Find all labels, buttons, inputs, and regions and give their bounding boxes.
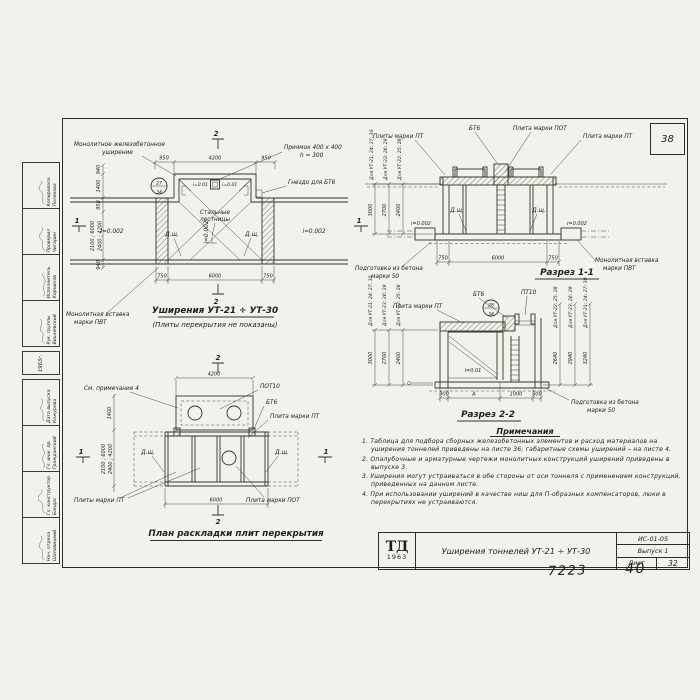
slab-hole <box>227 406 241 420</box>
handwritten-a: 7223 <box>548 563 587 579</box>
label-prep: Подготовка из бетона <box>571 400 639 406</box>
drawing-subtitle: (Плиты перекрытия не показаны) <box>152 321 277 329</box>
slope-label: i=0.002 <box>302 229 325 235</box>
svg-text:3240: 3240 <box>583 352 589 365</box>
svg-text:940: 940 <box>96 165 102 175</box>
svg-text:2100 ; 6000: 2100 ; 6000 <box>90 221 96 251</box>
drain-label: Д.щ. <box>244 232 259 238</box>
slope-label: i=0.002 <box>204 220 210 243</box>
section-1-1-drawing: Плиты марки ПТ БТ6 Плита марки ПОТ Плита… <box>345 122 690 290</box>
label-prep: Подготовка из бетона <box>355 266 423 272</box>
dim: 6000 <box>492 256 505 262</box>
svg-text:2400: 2400 <box>396 352 402 365</box>
drawing-title: План раскладки плит перекрытия <box>148 529 324 539</box>
svg-text:2940: 2940 <box>568 352 574 365</box>
left-insert-block <box>156 198 168 264</box>
label-bt6: БТ6 <box>469 126 481 132</box>
svg-text:уширение: уширение <box>101 150 133 156</box>
label-insert: Монолитная вставка <box>595 258 659 264</box>
note-item: 2. Опалубочные и арматурные чертежи моно… <box>362 456 688 472</box>
dim: 950 <box>159 156 169 162</box>
svg-text:2400 ; 4200: 2400 ; 4200 <box>98 221 104 251</box>
dim: 750 <box>157 274 167 280</box>
svg-text:2700: 2700 <box>382 352 388 365</box>
stamp-cell: Дата выпускаКожурова <box>23 380 59 425</box>
note-item: 4. При использовании уширений в качестве… <box>362 491 688 507</box>
stamp-cell: КопировалаПолякова <box>23 163 59 208</box>
ladder-rungs <box>511 340 519 380</box>
bt6-block <box>494 164 508 185</box>
svg-text:марки ПВТ: марки ПВТ <box>74 320 107 326</box>
drain-label: Д.щ. <box>164 232 179 238</box>
label-plita-pt: Плита марки ПТ <box>270 414 320 420</box>
logo: ТД 1963 <box>379 533 416 569</box>
ut-group-label: Для УТ-23; 26; 29 <box>383 138 389 181</box>
drawing-title: Уширения УТ-21 ÷ УТ-30 <box>152 306 278 316</box>
margin-stamp: Нач. отделаШаповицкий Гл. конструкторБан… <box>8 252 60 564</box>
notes-block: Примечания 1. Таблица для подбора сборны… <box>362 427 688 507</box>
label-pt10: ПТ10 <box>521 290 537 296</box>
label-pot10: ПОТ10 <box>260 384 280 390</box>
stamp-cell: Гл. инж. пр.Гражданский <box>23 425 59 471</box>
dim: 4200 <box>209 156 222 162</box>
plan-widening-drawing: Монолитное железобетонное уширение Приям… <box>62 122 382 357</box>
svg-text:940: 940 <box>96 260 102 270</box>
slope-label: i=0.01 <box>193 182 208 188</box>
stamp-authors-block: Рук. группыВишневский ИсполнительКорнило… <box>22 162 60 347</box>
label-monolithic-widening: Монолитное железобетонное <box>74 142 165 148</box>
drawing-title: Разрез 2-2 <box>461 410 515 420</box>
section-2-2-drawing: Плита марки ПТ БТ6 ПТ10 28 34 i=0.01 Под… <box>345 288 690 430</box>
svg-text:марки 50: марки 50 <box>587 408 615 414</box>
bt6-block <box>503 316 515 331</box>
svg-text:2700: 2700 <box>382 204 388 217</box>
dim: 300 <box>439 392 449 398</box>
logo-year: 1963 <box>387 553 408 561</box>
note-item: 3. Уширения могут устраиваться в обе сто… <box>362 473 688 489</box>
section-2-2-linework <box>372 296 593 421</box>
drawing-title: Разрез 1-1 <box>540 268 594 278</box>
ut-group-label: Для УТ-21; 24; 27; 30 <box>368 276 374 327</box>
stamp-cell: Рук. группыВишневский <box>23 300 59 346</box>
plan-widening-linework <box>70 139 368 317</box>
sheet-number: 32 <box>657 558 689 569</box>
dim: 6000 <box>209 274 222 280</box>
svg-text:h = 300: h = 300 <box>300 153 324 159</box>
label-bt6: БТ6 <box>473 292 485 298</box>
svg-text:1400: 1400 <box>96 180 102 193</box>
drain-label: Д.щ. <box>274 450 289 456</box>
stamp-cell: Гл. конструкторБандас <box>23 471 59 517</box>
pit-square <box>211 180 220 189</box>
svg-text:1400: 1400 <box>107 407 113 420</box>
dim: 4200 <box>208 372 221 378</box>
logo-td: ТД <box>386 541 409 554</box>
label-bt6: БТ6 <box>266 400 278 406</box>
svg-text:2100 ; 6000: 2100 ; 6000 <box>101 444 107 474</box>
slope-label: i=0.01 <box>222 182 237 188</box>
label-plita-pt: Плита марки ПТ <box>583 134 633 140</box>
label-insert: Монолитная вставка <box>66 312 130 318</box>
svg-text:2400: 2400 <box>396 204 402 217</box>
drain-label: Д.щ. <box>531 208 546 214</box>
svg-text:34: 34 <box>156 190 162 196</box>
label-pit: Приямок 400 х 400 <box>284 145 342 151</box>
label-socket: Гнездо для БТ6 <box>288 180 336 186</box>
section-mark-1: 1 <box>75 217 80 225</box>
label-see-note: См. примечание 4 <box>84 386 139 392</box>
slope-label: i=0.002 <box>100 229 123 235</box>
ut-group-label: Для УТ-21; 24; 27; 30 <box>369 130 375 181</box>
socket-notch <box>256 190 262 197</box>
slab-hole <box>222 451 236 465</box>
section-mark-2: 2 <box>214 298 219 306</box>
section-mark-1: 1 <box>324 448 329 456</box>
ut-group-label: Для УТ-23; 26; 29 <box>568 286 574 329</box>
stamp-cell: ИсполнительКорнилов <box>23 254 59 300</box>
stamp-year: 1963г. <box>22 351 60 375</box>
ut-group-label: Для УТ-22; 25; 28 <box>553 286 559 329</box>
document-code: ИС-01-05 <box>617 533 689 545</box>
slope-label: i=0.002 <box>411 221 431 227</box>
label-plita-pot: Плита марки ПОТ <box>246 498 300 504</box>
right-insert-block <box>262 198 274 264</box>
plan-slabs-drawing: 2 2 1 1 См. примечание 4 ПОТ10 БТ6 Плита… <box>68 352 380 548</box>
dim: 750 <box>438 256 448 262</box>
ut-group-label: Для УТ-23; 26; 29 <box>382 284 388 327</box>
notes-title: Примечания <box>362 427 688 436</box>
dim: А <box>471 392 476 398</box>
svg-text:марки 50: марки 50 <box>371 274 399 280</box>
svg-text:950: 950 <box>96 200 102 210</box>
issue-label: Выпуск 1 <box>617 545 689 557</box>
svg-text:27: 27 <box>156 181 162 187</box>
label-plity-pt: Плиты марки ПТ <box>74 498 125 504</box>
section-mark-2: 2 <box>216 518 221 526</box>
svg-text:34: 34 <box>488 312 494 318</box>
svg-text:2400 ; 4200: 2400 ; 4200 <box>108 444 114 474</box>
stamp-cell: Нач. отделаШаповицкий <box>23 517 59 563</box>
dim: 750 <box>263 274 273 280</box>
section-mark-1: 1 <box>79 448 84 456</box>
dim: 750 <box>548 256 558 262</box>
svg-text:2640: 2640 <box>553 352 559 365</box>
slope-label: i=0.002 <box>567 221 587 227</box>
drain-label: Д.щ. <box>449 208 464 214</box>
drain-label: Д.щ. <box>140 450 155 456</box>
section-mark-2: 2 <box>214 130 219 138</box>
svg-text:3000: 3000 <box>368 204 374 217</box>
dim: 6000 <box>210 498 223 504</box>
slab-hole <box>188 406 202 420</box>
svg-text:28: 28 <box>488 303 494 309</box>
ut-group-label: Для УТ-22; 25; 28 <box>396 284 402 327</box>
dim: 300 <box>532 392 542 398</box>
section-1-1-linework <box>365 132 667 279</box>
note-item: 1. Таблица для подбора сборных железобет… <box>362 438 688 454</box>
stamp-cell: ПроверилЧигарин <box>23 208 59 254</box>
dim: 1000 <box>510 392 523 398</box>
handwritten-numbers: 722340 <box>548 561 646 580</box>
handwritten-b: 40 <box>625 561 646 578</box>
label-ladders: Стальные <box>200 210 230 216</box>
stamp-approvals-block: Нач. отделаШаповицкий Гл. конструкторБан… <box>22 379 60 564</box>
dim: 950 <box>261 156 271 162</box>
ut-group-label: Для УТ-21; 24; 27; 30 <box>583 278 589 329</box>
section-mark-2: 2 <box>216 354 221 362</box>
ladder-rungs <box>497 190 505 230</box>
svg-text:марки ПВТ: марки ПВТ <box>603 266 636 272</box>
label-plita-pot: Плита марки ПОТ <box>513 126 567 132</box>
slope-label: i=0.01 <box>465 368 482 374</box>
ut-group-label: Для УТ-22; 25; 28 <box>397 138 403 181</box>
